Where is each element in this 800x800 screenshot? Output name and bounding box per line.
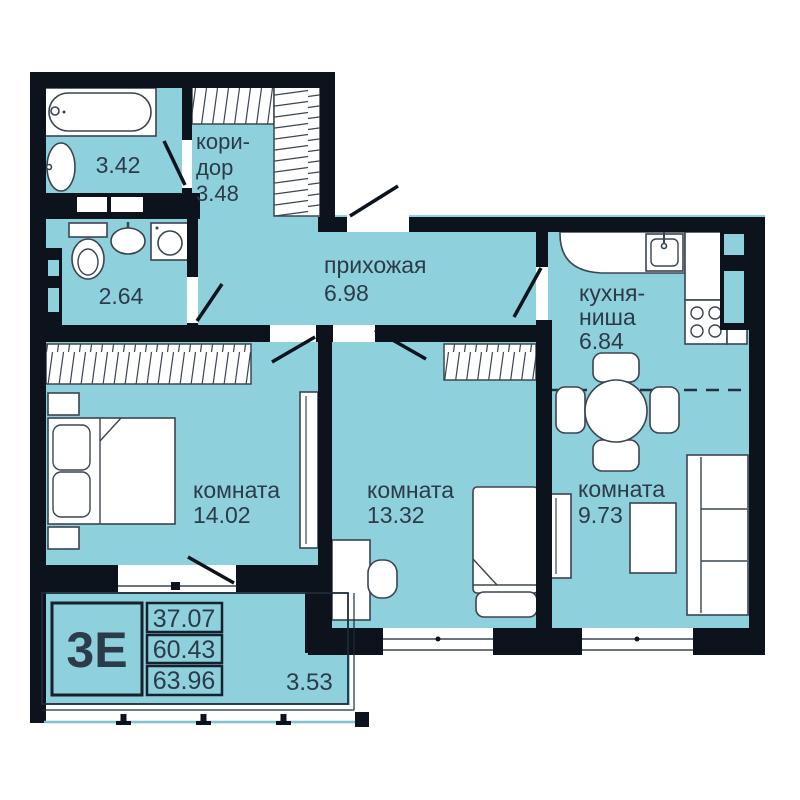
cabinet-icon (300, 392, 318, 548)
desk-icon (332, 540, 370, 620)
wardrobe-icon (444, 344, 536, 380)
floor-plan: 3Е 37.07 60.43 63.96 3.53 3.42 кори- дор… (0, 0, 800, 800)
legend-area-value: 63.96 (153, 667, 216, 695)
tv-stand-icon (551, 494, 571, 578)
legend-area-value: 60.43 (153, 636, 216, 664)
wc-area-label: 2.64 (99, 283, 144, 309)
hallway-label: прихожая (324, 252, 427, 278)
sofa-icon (687, 455, 748, 615)
room3-area-label: 9.73 (578, 502, 623, 528)
washing-machine-icon (151, 223, 190, 260)
room2-area-label: 13.32 (367, 502, 425, 528)
legend-area-value: 37.07 (153, 605, 216, 633)
bedroom-area-label: 14.02 (193, 502, 251, 528)
corridor-label: кори- (196, 129, 250, 154)
entrance-door-opening (347, 215, 409, 232)
toilet-icon (69, 223, 107, 279)
bathroom-area-label: 3.42 (96, 152, 141, 178)
chair-icon (368, 560, 397, 598)
balcony-door-window (118, 565, 236, 592)
vent-shaft (720, 228, 750, 330)
kitchen-area-label: 6.84 (579, 328, 624, 354)
room3-label: комната (578, 476, 665, 502)
kitchen-sink-icon (646, 230, 683, 271)
corridor-area-label: 3.48 (196, 181, 239, 206)
corridor-label: дор (196, 155, 233, 180)
double-bed-icon (48, 418, 175, 524)
hallway-area-label: 6.98 (324, 280, 369, 306)
balcony-area-label: 3.53 (286, 669, 333, 696)
bathtub-icon (44, 88, 156, 136)
kitchen-label: ниша (579, 304, 636, 330)
apartment-type-label: 3Е (66, 622, 127, 678)
room2-label: комната (367, 477, 454, 503)
nightstand-icon (48, 393, 79, 415)
kitchen-label: кухня- (579, 280, 645, 306)
window (383, 628, 493, 655)
wardrobe-icon (192, 86, 274, 124)
entrance-door-swing (350, 186, 398, 216)
railing-ticks (116, 712, 369, 727)
window (582, 628, 693, 655)
wardrobe-icon (46, 344, 251, 384)
sink-icon (47, 143, 76, 191)
floor-plan-canvas: 3Е 37.07 60.43 63.96 3.53 3.42 кори- дор… (0, 0, 800, 800)
nightstand-icon (48, 527, 79, 549)
coffee-table-icon (630, 503, 676, 573)
bedroom-label: комната (193, 477, 280, 503)
vent-shaft (46, 248, 62, 326)
wardrobe-icon (274, 86, 320, 216)
single-bed-icon (473, 487, 538, 617)
